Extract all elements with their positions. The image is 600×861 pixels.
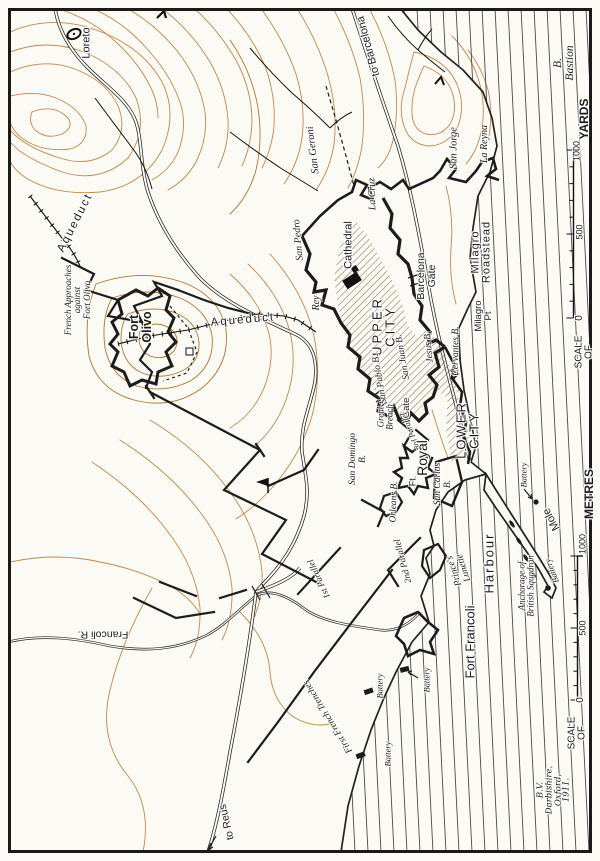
fort-royal-outline [394, 446, 436, 494]
hill-mark-icon [157, 11, 166, 18]
princes-lunette-outline [422, 544, 446, 578]
scale-bar-metres [571, 556, 584, 700]
coastline [341, 8, 497, 852]
flag-icon [256, 478, 268, 493]
streams [95, 16, 445, 191]
map-artwork [0, 0, 600, 861]
fort-francoli-outline [396, 612, 438, 656]
san-carlos-bastion-outline [434, 456, 462, 506]
river-francoli [8, 593, 420, 649]
siege-map-of-tarragona: Loretoto BarcelonaB. BastionYARDS1000500… [0, 0, 600, 861]
hill-mark-icon [435, 77, 444, 85]
